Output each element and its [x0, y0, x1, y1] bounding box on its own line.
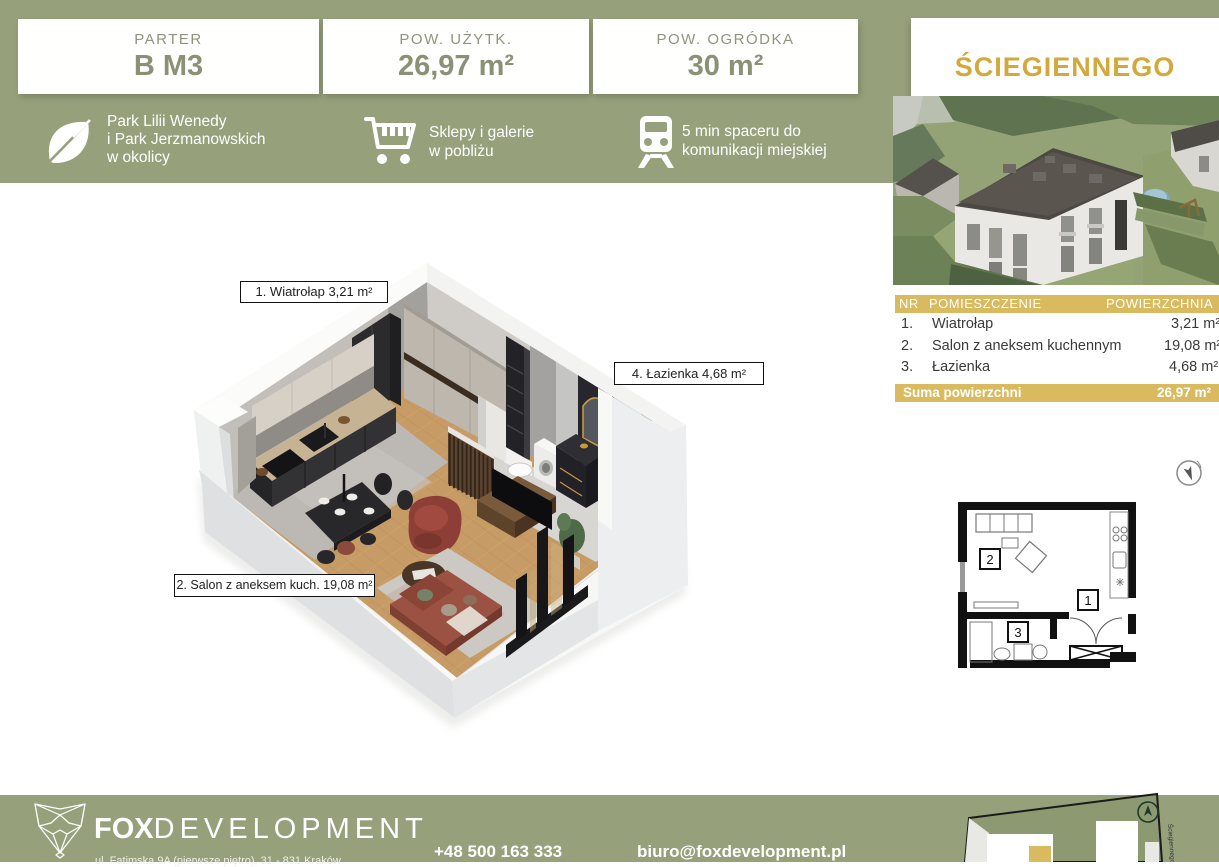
svg-text:Ściegiennego: Ściegiennego — [1166, 824, 1178, 862]
